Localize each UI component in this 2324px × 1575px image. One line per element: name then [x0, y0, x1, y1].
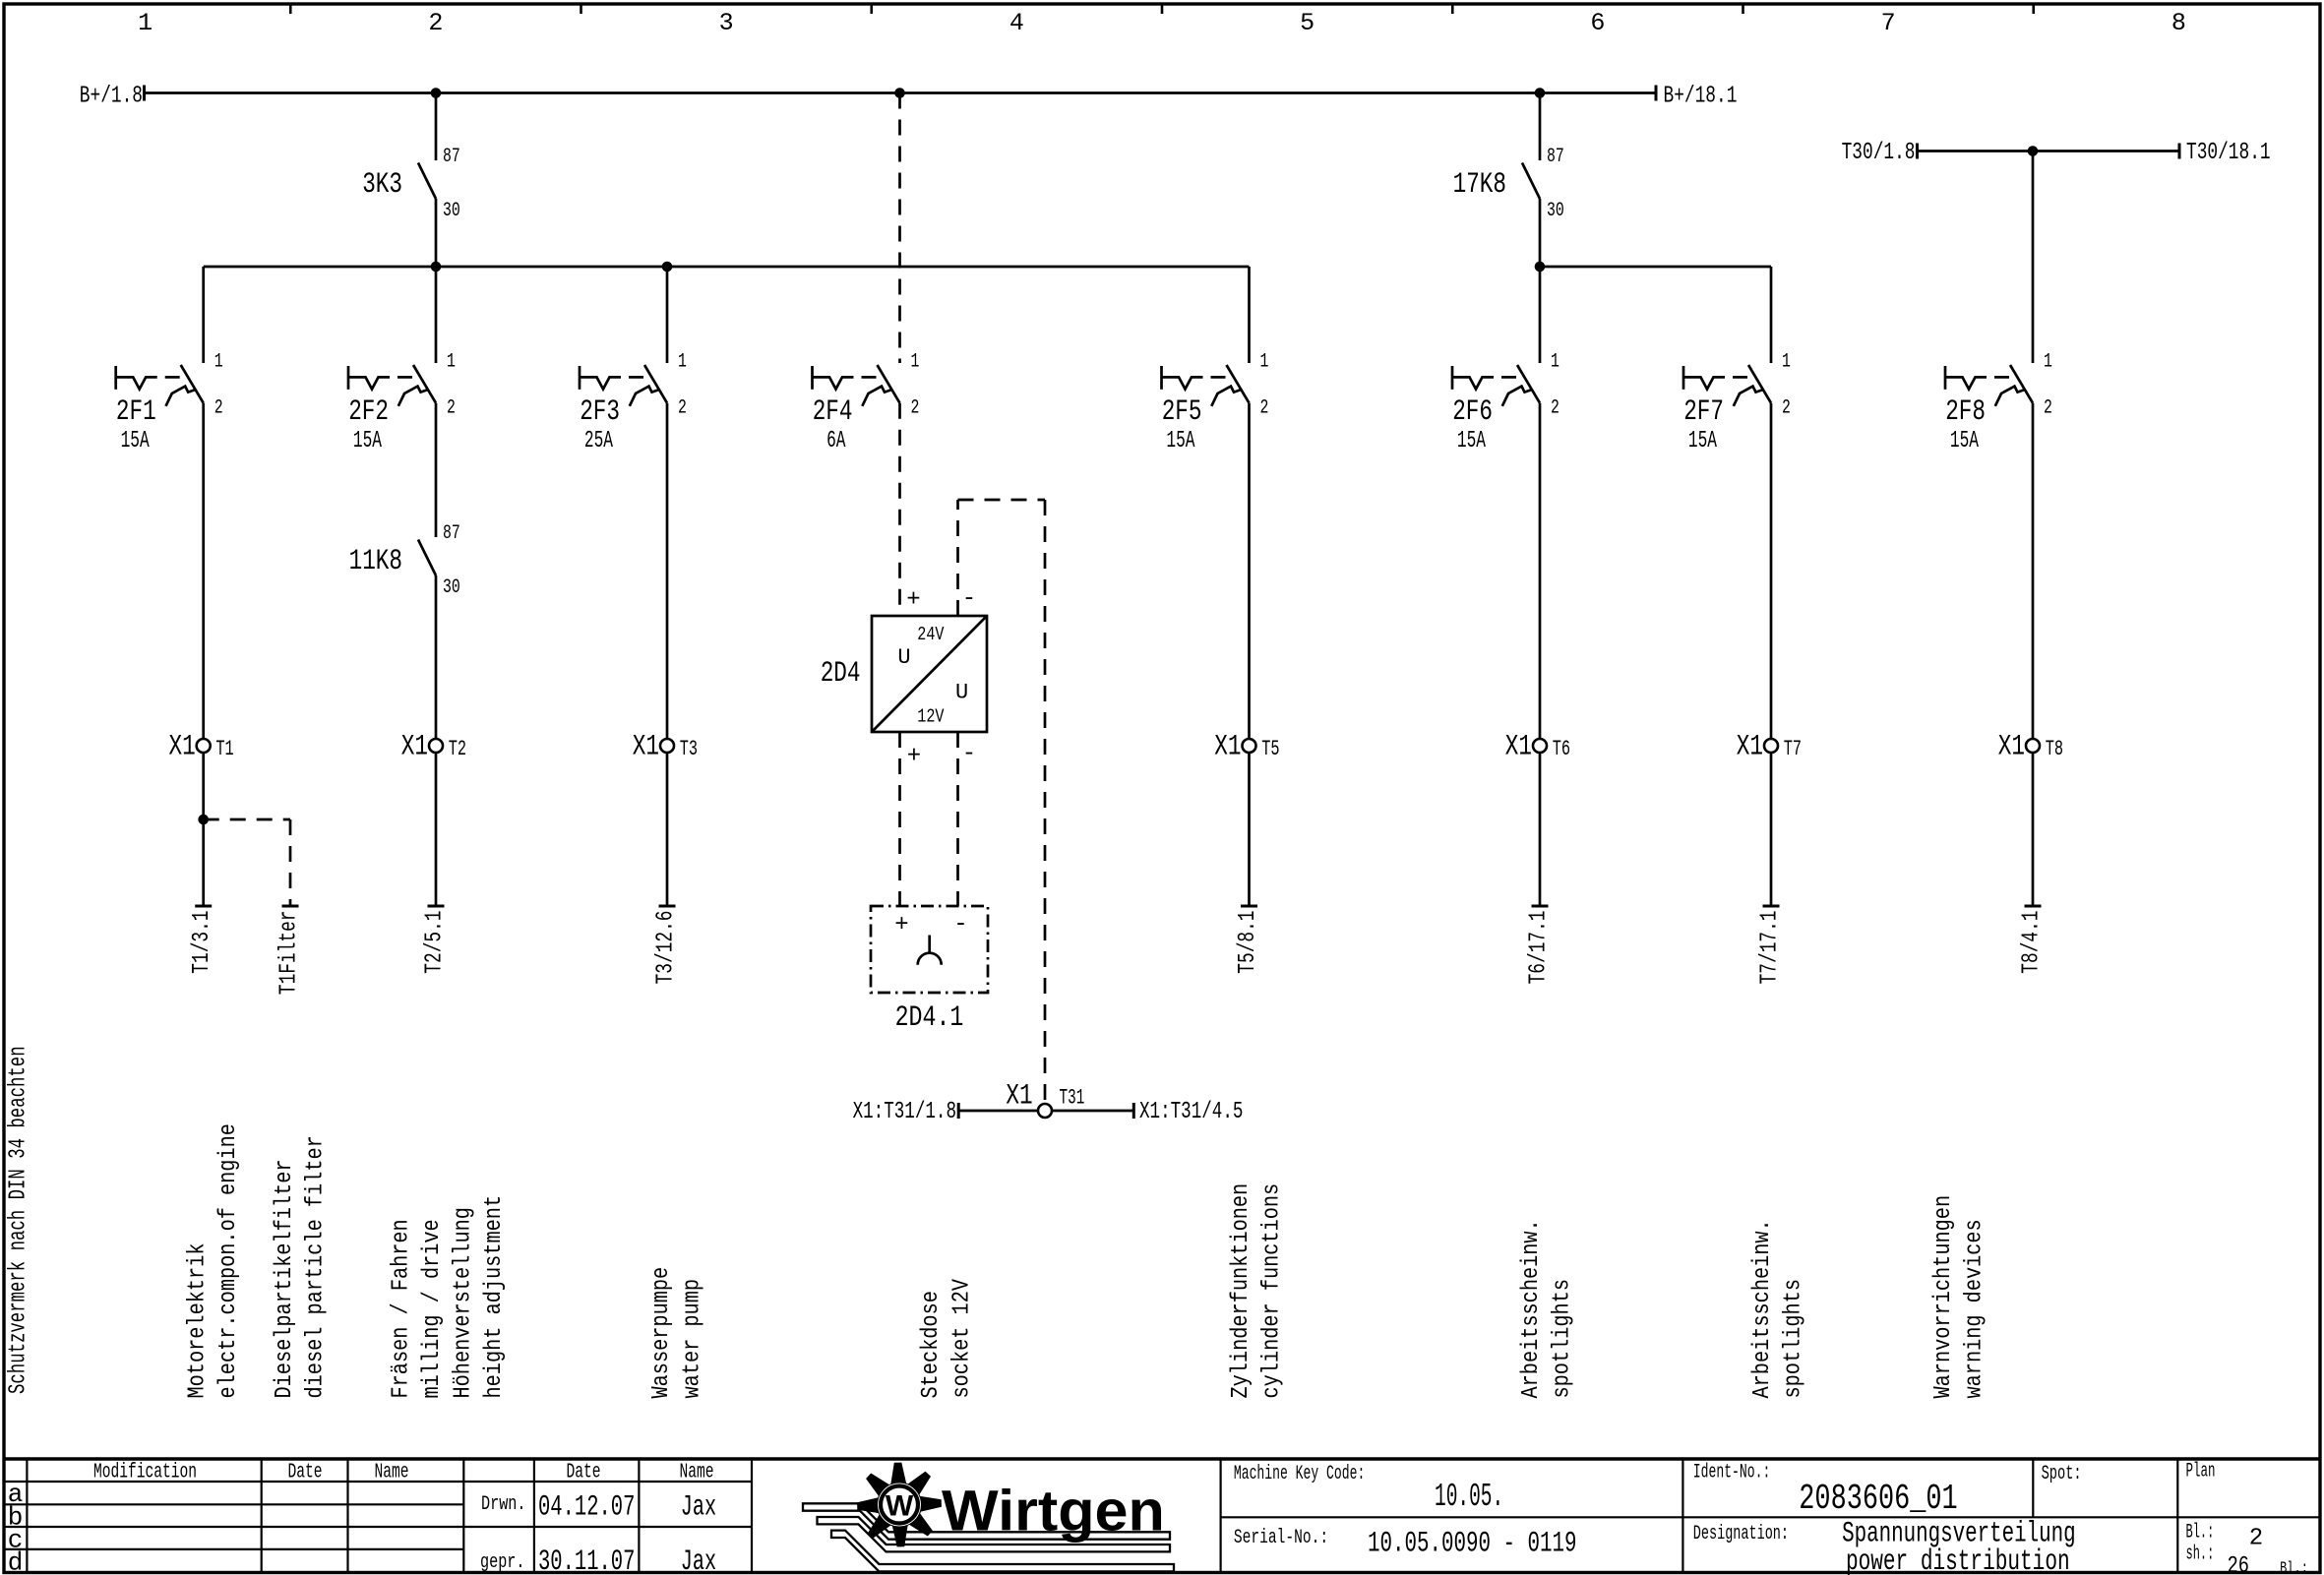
svg-text:T3: T3 — [680, 737, 698, 761]
svg-text:T2/5.1: T2/5.1 — [422, 911, 449, 974]
svg-text:Schutzvermerk nach DIN 34 beac: Schutzvermerk nach DIN 34 beachten — [6, 1046, 32, 1394]
svg-text:+: + — [907, 744, 921, 770]
svg-text:-: - — [953, 911, 967, 938]
svg-text:sh.:: sh.: — [2186, 1544, 2215, 1566]
svg-text:Name: Name — [375, 1462, 409, 1484]
svg-text:X1: X1 — [401, 731, 428, 764]
svg-text:Höhenverstellung: Höhenverstellung — [451, 1207, 477, 1398]
svg-text:2: 2 — [2249, 1526, 2263, 1552]
svg-text:24V: 24V — [917, 624, 945, 645]
svg-text:spotlights: spotlights — [1781, 1279, 1807, 1399]
svg-text:B+/1.8: B+/1.8 — [80, 84, 143, 110]
svg-text:8: 8 — [2171, 9, 2186, 37]
svg-text:Bl.:: Bl.: — [2186, 1522, 2215, 1545]
svg-text:15A: 15A — [1166, 428, 1194, 454]
svg-text:T1/3.1: T1/3.1 — [189, 911, 215, 974]
svg-text:2D4.1: 2D4.1 — [895, 1001, 964, 1035]
svg-text:2: 2 — [214, 396, 223, 419]
svg-text:T6/17.1: T6/17.1 — [1526, 911, 1553, 985]
svg-text:Ident-No.:: Ident-No.: — [1693, 1462, 1771, 1484]
svg-text:height adjustment: height adjustment — [481, 1195, 508, 1399]
svg-text:W: W — [886, 1490, 914, 1523]
svg-text:diesel particle filter: diesel particle filter — [303, 1135, 330, 1398]
svg-text:Motorelektrik: Motorelektrik — [185, 1243, 212, 1399]
svg-text:04.12.07: 04.12.07 — [538, 1491, 635, 1525]
svg-text:1: 1 — [2044, 350, 2052, 373]
svg-text:Date: Date — [288, 1462, 323, 1484]
svg-text:X1:T31/4.5: X1:T31/4.5 — [1139, 1099, 1243, 1125]
svg-text:15A: 15A — [1457, 428, 1486, 454]
svg-text:Machine Key Code:: Machine Key Code: — [1234, 1463, 1365, 1485]
svg-text:2F1: 2F1 — [116, 395, 156, 429]
svg-text:6A: 6A — [826, 428, 846, 454]
svg-text:T5: T5 — [1261, 737, 1279, 761]
svg-text:T3/12.6: T3/12.6 — [653, 911, 680, 985]
svg-text:Fräsen / Fahren: Fräsen / Fahren — [389, 1219, 415, 1398]
svg-text:17K8: 17K8 — [1453, 168, 1506, 202]
svg-text:12V: 12V — [917, 705, 945, 727]
svg-text:87: 87 — [1547, 146, 1564, 168]
svg-text:milling / drive: milling / drive — [419, 1219, 446, 1398]
svg-text:15A: 15A — [353, 428, 382, 454]
svg-text:Arbeitsscheinw.: Arbeitsscheinw. — [1518, 1219, 1545, 1398]
svg-text:Wasserpumpe: Wasserpumpe — [648, 1267, 675, 1399]
svg-text:Bl.:: Bl.: — [2280, 1560, 2308, 1575]
svg-text:X1: X1 — [1998, 731, 2025, 764]
svg-text:2F4: 2F4 — [813, 395, 853, 429]
svg-text:T7/17.1: T7/17.1 — [1757, 911, 1784, 985]
svg-text:Arbeitsscheinw.: Arbeitsscheinw. — [1749, 1219, 1776, 1398]
svg-text:2F2: 2F2 — [348, 395, 389, 429]
svg-text:1: 1 — [447, 350, 456, 373]
svg-text:U: U — [897, 645, 910, 670]
svg-text:15A: 15A — [1950, 428, 1979, 454]
svg-text:X1: X1 — [1505, 731, 1532, 764]
svg-text:U: U — [955, 680, 968, 704]
svg-text:2F7: 2F7 — [1683, 395, 1724, 429]
svg-text:Plan: Plan — [2186, 1461, 2216, 1484]
svg-text:X1: X1 — [633, 731, 659, 764]
svg-text:-: - — [962, 585, 976, 612]
svg-text:Designation:: Designation: — [1693, 1523, 1789, 1545]
svg-text:Wirtgen: Wirtgen — [942, 1480, 1165, 1544]
svg-text:30: 30 — [443, 576, 460, 599]
svg-text:Name: Name — [680, 1462, 714, 1484]
svg-text:Steckdose: Steckdose — [918, 1291, 945, 1398]
svg-text:T8: T8 — [2046, 737, 2063, 761]
svg-text:3K3: 3K3 — [362, 168, 402, 202]
svg-text:T7: T7 — [1784, 737, 1802, 761]
svg-text:warning devices: warning devices — [1962, 1219, 1988, 1398]
svg-text:1: 1 — [214, 350, 223, 373]
svg-text:30: 30 — [1547, 200, 1564, 222]
svg-text:1: 1 — [138, 9, 153, 37]
svg-text:T8/4.1: T8/4.1 — [2019, 911, 2046, 974]
svg-text:cylinder functions: cylinder functions — [1259, 1183, 1286, 1399]
svg-text:Jax: Jax — [681, 1545, 716, 1575]
svg-text:T1: T1 — [215, 737, 233, 761]
svg-text:B+/18.1: B+/18.1 — [1664, 84, 1738, 110]
svg-text:T1Filter: T1Filter — [276, 911, 303, 996]
svg-text:-: - — [962, 741, 976, 767]
svg-text:15A: 15A — [121, 428, 150, 454]
svg-text:2083606_01: 2083606_01 — [1799, 1479, 1957, 1519]
svg-text:30: 30 — [443, 200, 460, 222]
svg-text:15A: 15A — [1688, 428, 1717, 454]
svg-text:power distribution: power distribution — [1846, 1545, 2070, 1575]
svg-text:1: 1 — [1260, 350, 1269, 373]
svg-text:X1: X1 — [1737, 731, 1763, 764]
svg-text:2: 2 — [447, 396, 456, 419]
svg-text:2: 2 — [428, 9, 443, 37]
svg-text:T31: T31 — [1060, 1085, 1085, 1110]
svg-text:11K8: 11K8 — [349, 545, 402, 578]
svg-text:gepr.: gepr. — [480, 1551, 525, 1574]
svg-text:water pump: water pump — [680, 1279, 706, 1399]
svg-text:T5/8.1: T5/8.1 — [1235, 911, 1261, 974]
svg-text:7: 7 — [1881, 9, 1896, 37]
svg-text:2: 2 — [1260, 396, 1269, 419]
svg-text:6: 6 — [1590, 9, 1605, 37]
svg-text:1: 1 — [678, 350, 687, 373]
svg-text:2F6: 2F6 — [1452, 395, 1493, 429]
svg-text:Dieselpartikelfilter: Dieselpartikelfilter — [272, 1160, 298, 1399]
svg-text:X1: X1 — [1214, 731, 1241, 764]
svg-text:X1:T31/1.8: X1:T31/1.8 — [853, 1099, 956, 1125]
svg-text:T6: T6 — [1553, 737, 1570, 761]
svg-text:2: 2 — [678, 396, 687, 419]
svg-text:spotlights: spotlights — [1550, 1279, 1576, 1399]
svg-text:1: 1 — [1551, 350, 1560, 373]
svg-text:Warnvorrichtungen: Warnvorrichtungen — [1930, 1195, 1957, 1399]
svg-text:Spot:: Spot: — [2042, 1463, 2082, 1485]
svg-text:Drwn.: Drwn. — [481, 1493, 526, 1516]
svg-text:2: 2 — [1551, 396, 1560, 419]
svg-text:2: 2 — [1782, 396, 1791, 419]
svg-text:26: 26 — [2228, 1553, 2249, 1575]
svg-text:X1: X1 — [1006, 1079, 1032, 1113]
svg-text:25A: 25A — [584, 428, 613, 454]
svg-text:Zylinderfunktionen: Zylinderfunktionen — [1228, 1183, 1254, 1399]
svg-text:2: 2 — [911, 396, 920, 419]
svg-text:5: 5 — [1300, 9, 1315, 37]
svg-text:4: 4 — [1009, 9, 1024, 37]
svg-text:Date: Date — [567, 1462, 601, 1484]
svg-text:2F8: 2F8 — [1945, 395, 1986, 429]
svg-text:2F3: 2F3 — [580, 395, 620, 429]
svg-text:2F5: 2F5 — [1162, 395, 1202, 429]
svg-text:Jax: Jax — [681, 1491, 716, 1525]
svg-text:Modification: Modification — [93, 1462, 197, 1484]
svg-text:3: 3 — [719, 9, 734, 37]
svg-text:2D4: 2D4 — [821, 657, 861, 691]
svg-text:+: + — [906, 586, 920, 613]
svg-text:socket 12V: socket 12V — [949, 1279, 976, 1399]
svg-text:T30/1.8: T30/1.8 — [1842, 140, 1916, 166]
svg-text:87: 87 — [443, 522, 460, 545]
svg-text:T30/18.1: T30/18.1 — [2186, 140, 2271, 166]
svg-text:30.11.07: 30.11.07 — [538, 1545, 635, 1575]
svg-text:X1: X1 — [169, 731, 196, 764]
svg-text:87: 87 — [443, 146, 460, 168]
svg-text:T2: T2 — [449, 737, 466, 761]
svg-text:10.05.0090 - 0119: 10.05.0090 - 0119 — [1368, 1528, 1577, 1561]
svg-text:10.05.: 10.05. — [1435, 1479, 1503, 1515]
svg-text:Serial-No.:: Serial-No.: — [1234, 1527, 1328, 1549]
svg-text:d: d — [8, 1548, 24, 1575]
svg-text:1: 1 — [1782, 350, 1791, 373]
svg-text:1: 1 — [911, 350, 920, 373]
svg-text:2: 2 — [2044, 396, 2052, 419]
svg-text:+: + — [894, 912, 908, 939]
svg-text:electr.compon.of engine: electr.compon.of engine — [215, 1123, 242, 1398]
